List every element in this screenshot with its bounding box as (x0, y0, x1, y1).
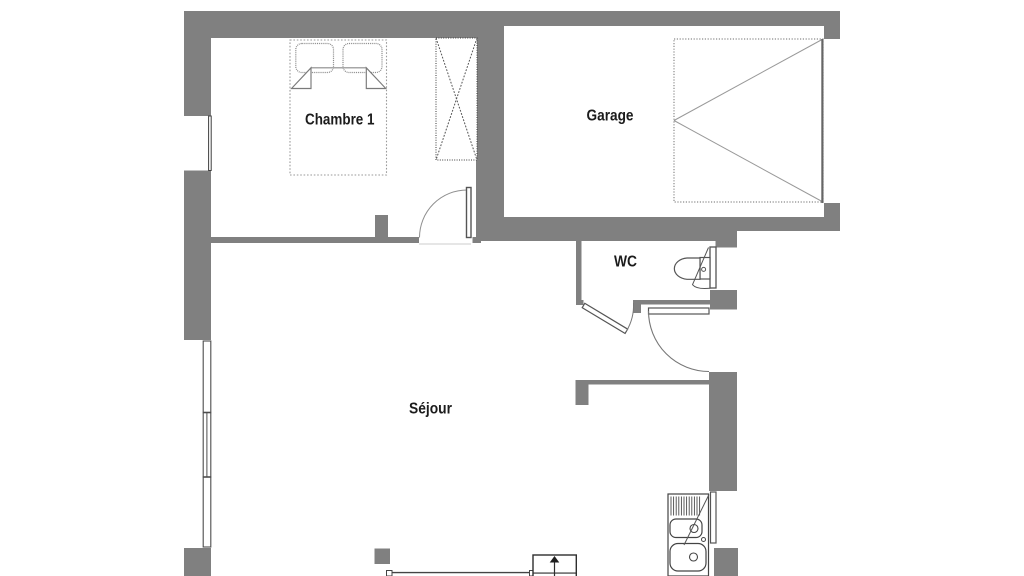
svg-text:Garage: Garage (587, 108, 634, 125)
svg-text:Chambre 1: Chambre 1 (305, 112, 375, 129)
svg-text:WC: WC (614, 254, 637, 271)
svg-text:Séjour: Séjour (409, 401, 452, 418)
